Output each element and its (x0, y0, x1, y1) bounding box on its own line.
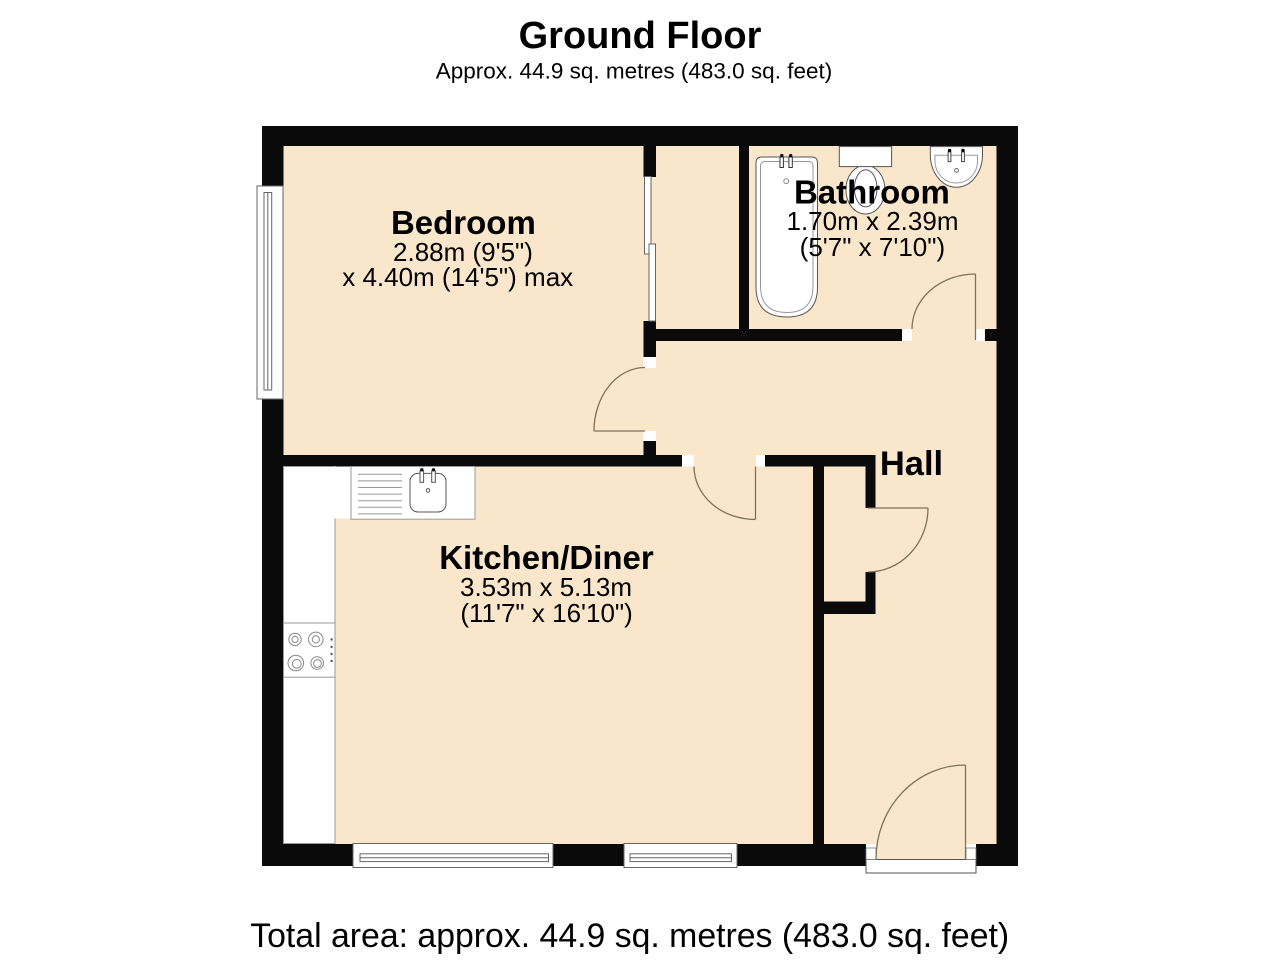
svg-text:x 4.40m (14'5") max: x 4.40m (14'5") max (342, 262, 573, 292)
svg-text:(11'7" x 16'10"): (11'7" x 16'10") (460, 598, 632, 628)
svg-text:Hall: Hall (880, 445, 943, 483)
svg-text:(5'7" x 7'10"): (5'7" x 7'10") (800, 232, 945, 262)
svg-text:Kitchen/Diner: Kitchen/Diner (439, 539, 654, 576)
svg-text:Bathroom: Bathroom (794, 174, 950, 211)
svg-text:Ground Floor: Ground Floor (519, 15, 762, 57)
svg-text:Approx. 44.9 sq. metres (483.0: Approx. 44.9 sq. metres (483.0 sq. feet) (436, 58, 832, 83)
svg-text:Bedroom: Bedroom (391, 204, 536, 241)
svg-text:Total area: approx. 44.9 sq. m: Total area: approx. 44.9 sq. metres (483… (250, 917, 1009, 955)
